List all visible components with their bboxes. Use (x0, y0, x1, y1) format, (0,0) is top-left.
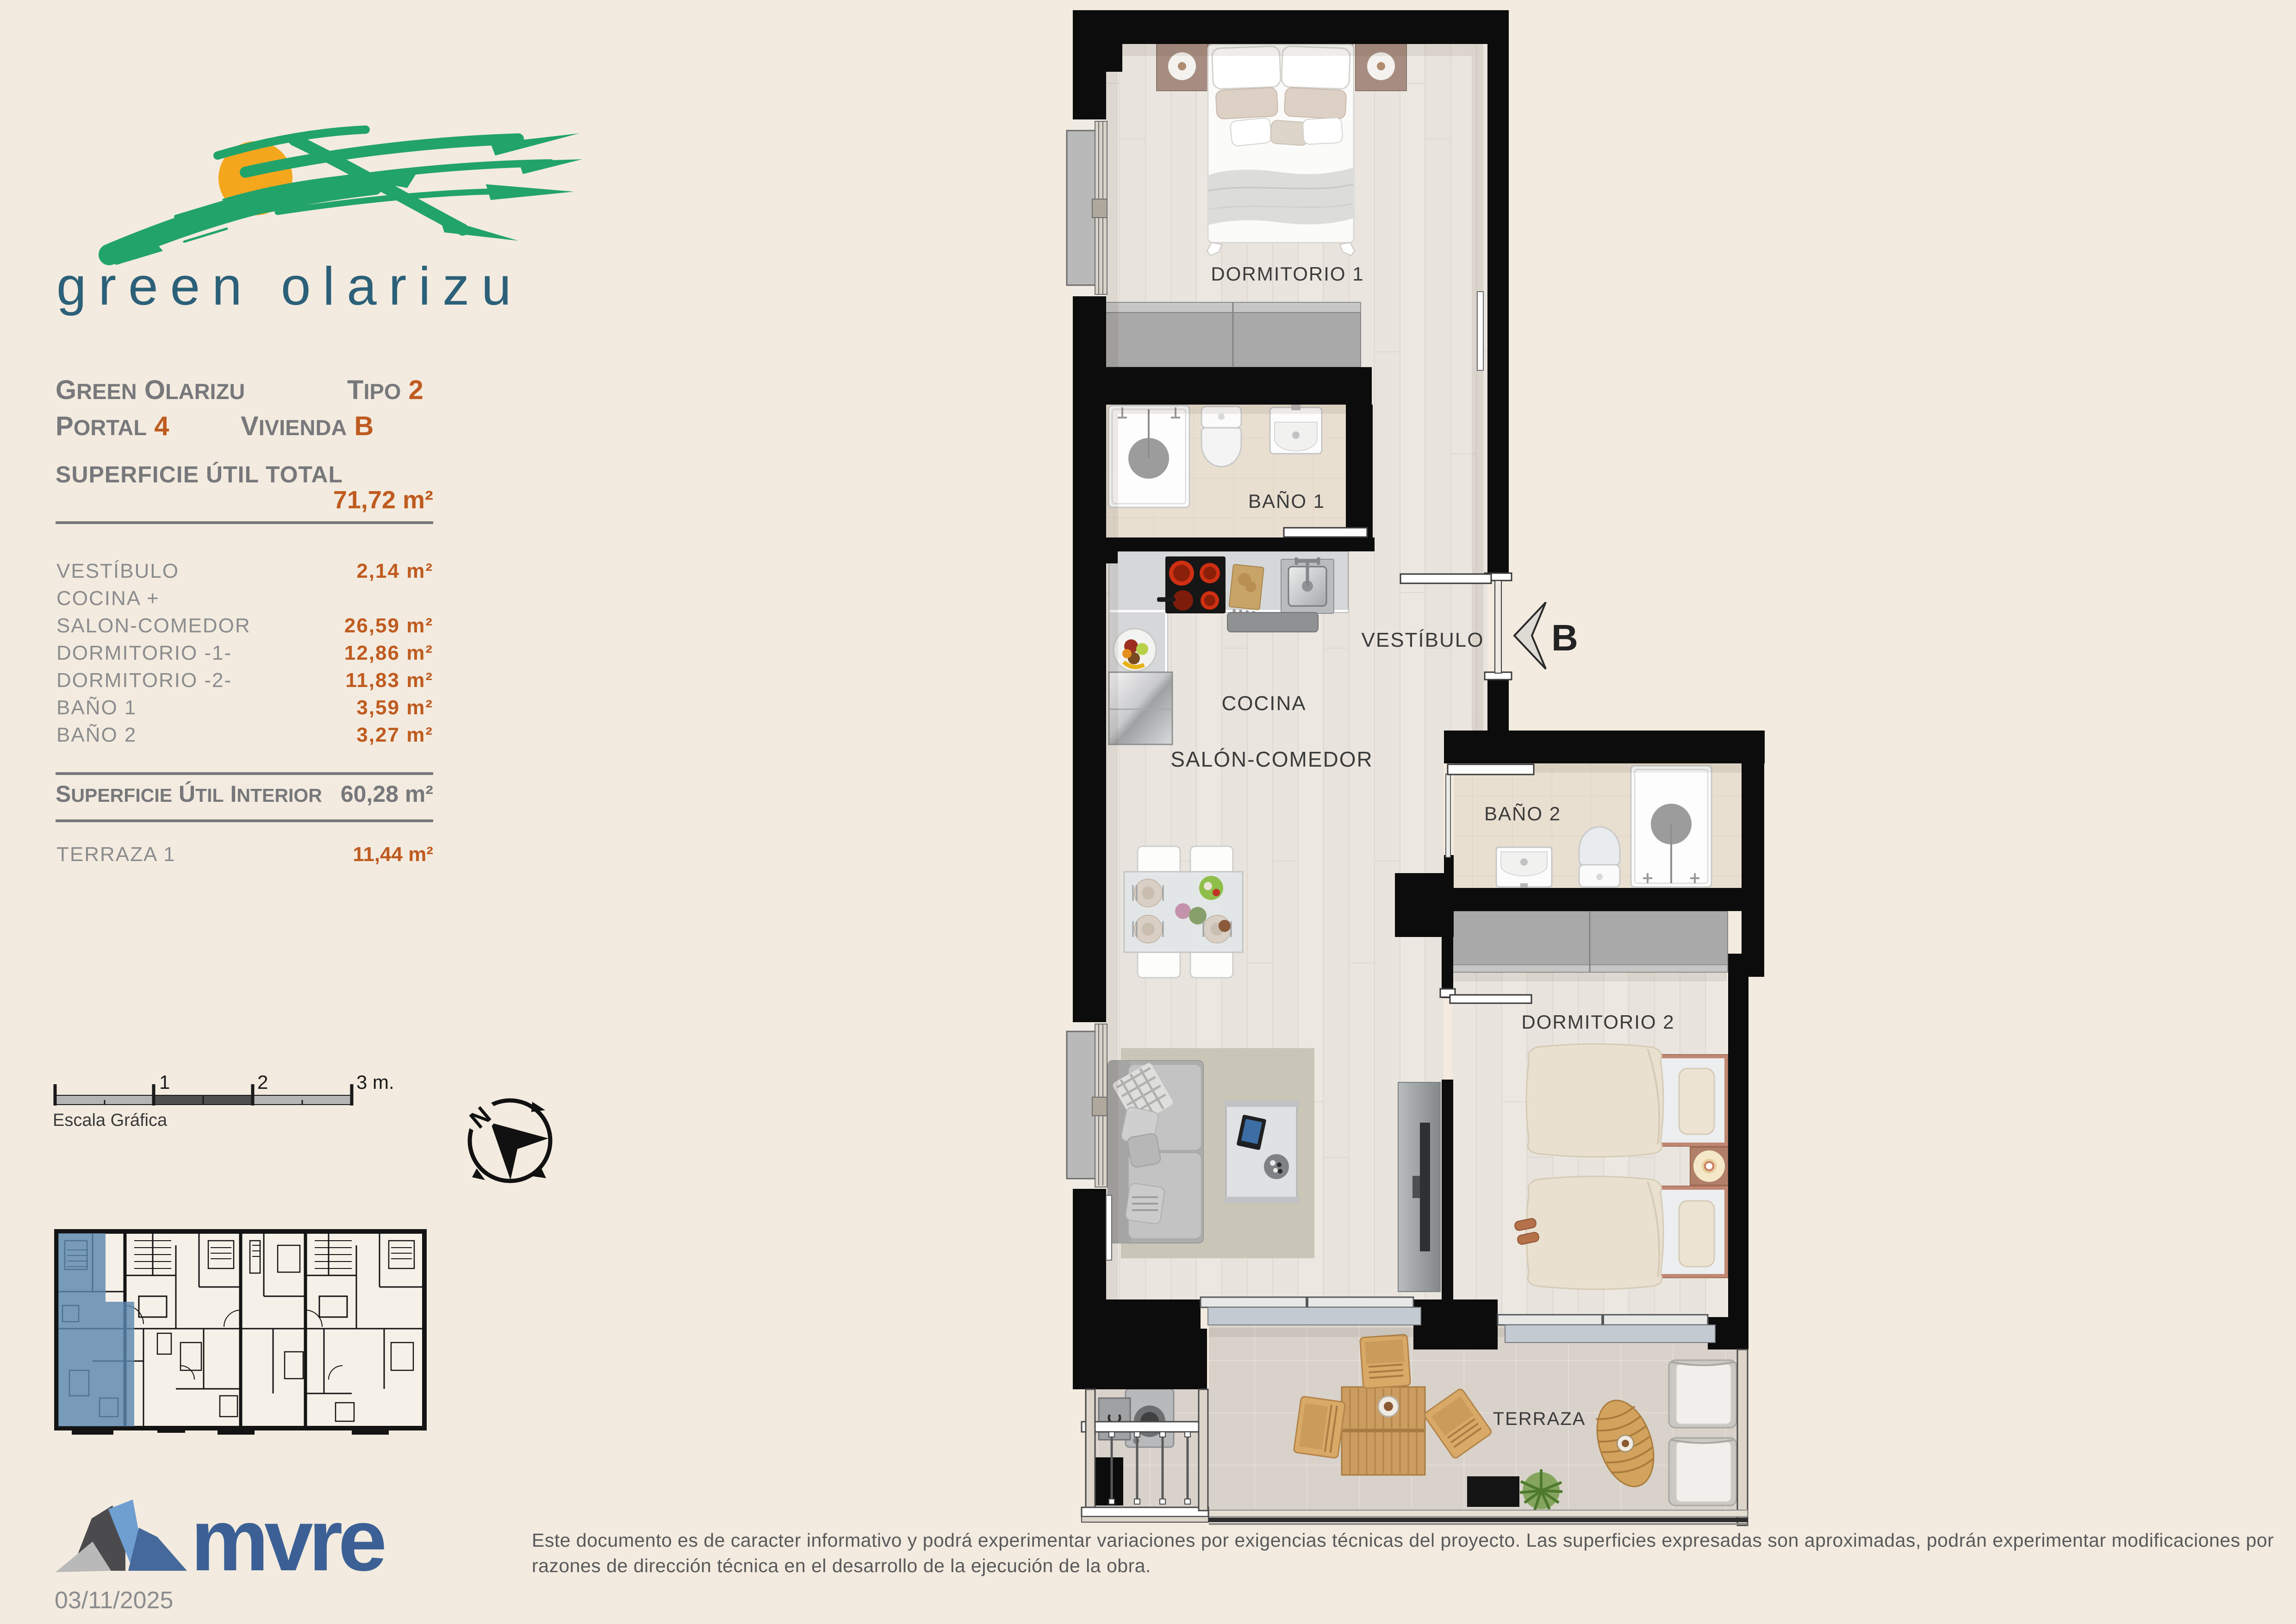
svg-text:BAÑO 2: BAÑO 2 (1484, 803, 1561, 824)
svg-text:Este documento es de caracter: Este documento es de caracter informativ… (532, 1530, 2274, 1551)
svg-text:1: 1 (159, 1071, 170, 1093)
svg-text:DORMITORIO -2-: DORMITORIO -2- (56, 669, 232, 692)
svg-text:26,59 m²: 26,59 m² (344, 614, 433, 637)
svg-text:GREEN OLARIZU: GREEN OLARIZU (56, 375, 245, 405)
svg-text:B: B (1551, 617, 1578, 658)
svg-text:VESTÍBULO: VESTÍBULO (56, 560, 179, 582)
svg-text:SALÓN-COMEDOR: SALÓN-COMEDOR (1170, 747, 1373, 771)
svg-text:VESTÍBULO: VESTÍBULO (1362, 629, 1484, 651)
svg-text:TERRAZA 1: TERRAZA 1 (56, 843, 176, 866)
svg-text:TIPO 2: TIPO 2 (347, 375, 423, 405)
svg-text:12,86 m²: 12,86 m² (344, 642, 433, 664)
svg-text:Escala Gráfica: Escala Gráfica (53, 1111, 168, 1130)
svg-text:2: 2 (257, 1071, 268, 1093)
svg-text:BAÑO 2: BAÑO 2 (56, 723, 137, 746)
svg-text:BAÑO 1: BAÑO 1 (1248, 490, 1325, 512)
svg-text:SUPERFICIE ÚTIL INTERIOR: SUPERFICIE ÚTIL INTERIOR (56, 781, 322, 807)
svg-text:TERRAZA: TERRAZA (1493, 1409, 1586, 1429)
svg-text:COCINA +: COCINA + (56, 587, 160, 610)
svg-text:SUPERFICIE ÚTIL TOTAL: SUPERFICIE ÚTIL TOTAL (56, 462, 343, 487)
svg-text:2,14 m²: 2,14 m² (356, 560, 433, 582)
svg-text:71,72 m²: 71,72 m² (333, 486, 433, 514)
svg-text:03/11/2025: 03/11/2025 (55, 1587, 173, 1614)
svg-text:60,28 m²: 60,28 m² (341, 781, 433, 807)
svg-text:VIVIENDA B: VIVIENDA B (241, 411, 373, 441)
svg-text:mvre: mvre (191, 1491, 385, 1589)
svg-text:11,83 m²: 11,83 m² (345, 669, 433, 692)
svg-text:DORMITORIO -1-: DORMITORIO -1- (56, 642, 232, 664)
svg-text:green olarizu: green olarizu (56, 256, 523, 316)
svg-text:3,59 m²: 3,59 m² (356, 696, 433, 719)
svg-text:COCINA: COCINA (1221, 692, 1306, 715)
svg-text:3 m.: 3 m. (356, 1071, 394, 1093)
svg-text:SALON-COMEDOR: SALON-COMEDOR (56, 614, 251, 637)
svg-text:razones de dirección técnica e: razones de dirección técnica en el desar… (532, 1555, 1151, 1576)
svg-text:11,44 m²: 11,44 m² (353, 843, 433, 866)
svg-text:BAÑO 1: BAÑO 1 (56, 696, 137, 719)
svg-text:PORTAL 4: PORTAL 4 (56, 411, 169, 441)
svg-text:DORMITORIO 1: DORMITORIO 1 (1211, 263, 1364, 285)
svg-text:3,27 m²: 3,27 m² (356, 724, 433, 746)
svg-text:DORMITORIO 2: DORMITORIO 2 (1521, 1011, 1674, 1033)
